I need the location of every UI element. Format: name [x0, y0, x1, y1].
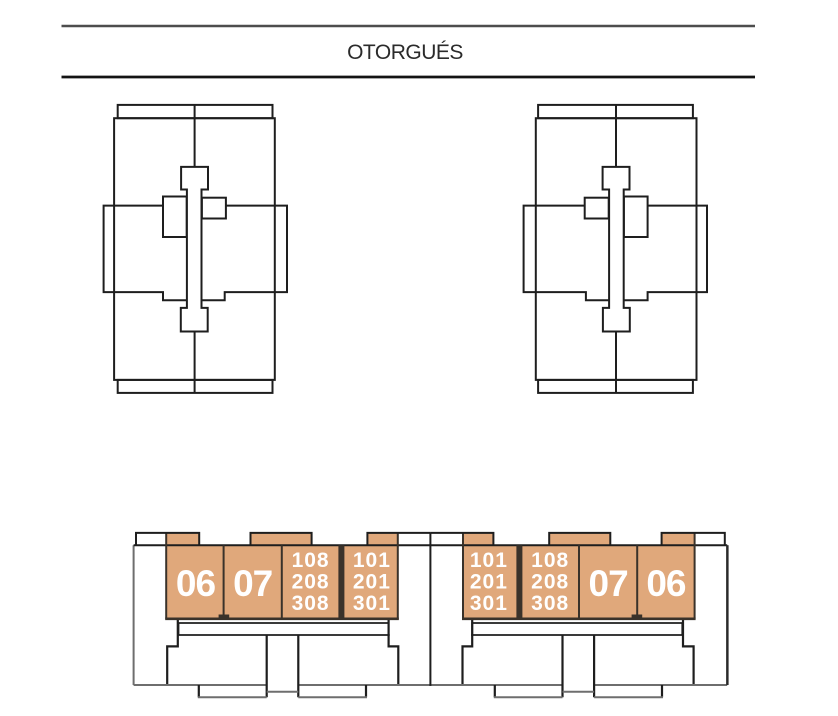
svg-text:308: 308: [531, 592, 569, 615]
svg-text:06: 06: [646, 563, 686, 604]
svg-text:208: 208: [531, 571, 569, 594]
svg-text:101: 101: [353, 549, 391, 572]
svg-text:301: 301: [353, 592, 391, 615]
svg-text:201: 201: [470, 571, 508, 594]
svg-text:201: 201: [353, 571, 391, 594]
svg-text:06: 06: [176, 563, 216, 604]
svg-text:301: 301: [470, 592, 508, 615]
svg-text:108: 108: [292, 549, 330, 572]
svg-text:101: 101: [470, 549, 508, 572]
svg-text:208: 208: [292, 571, 330, 594]
svg-text:07: 07: [589, 563, 628, 604]
svg-text:308: 308: [292, 592, 330, 615]
svg-text:OTORGUÉS: OTORGUÉS: [347, 41, 463, 64]
svg-text:07: 07: [233, 563, 272, 604]
svg-text:108: 108: [531, 549, 569, 572]
